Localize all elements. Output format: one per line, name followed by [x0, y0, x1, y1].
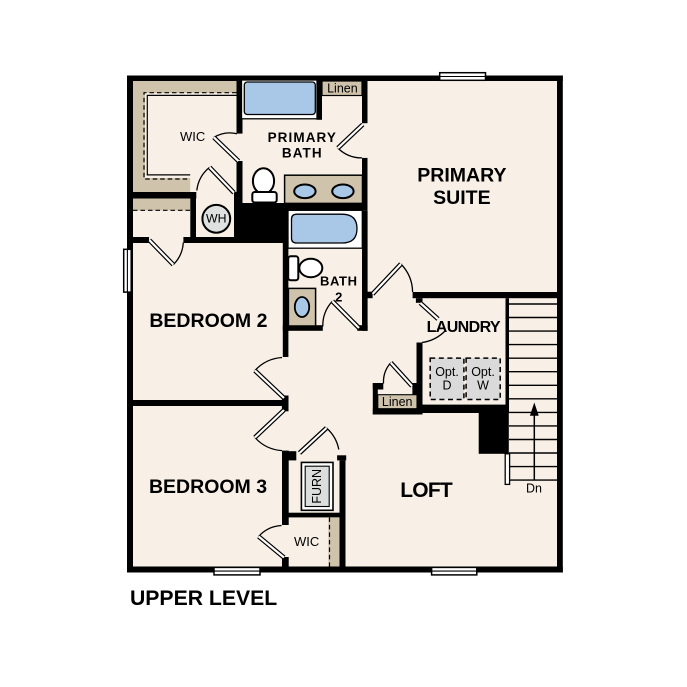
svg-text:BATH: BATH [320, 274, 358, 289]
svg-text:2: 2 [335, 290, 342, 305]
svg-text:BEDROOM 2: BEDROOM 2 [149, 310, 267, 332]
svg-text:FURN: FURN [310, 469, 324, 504]
svg-text:BATH: BATH [282, 146, 323, 161]
svg-text:Opt.: Opt. [471, 365, 495, 379]
svg-text:WIC: WIC [180, 129, 205, 144]
svg-text:W: W [477, 379, 489, 393]
svg-text:Linen: Linen [382, 395, 413, 409]
svg-text:PRIMARY: PRIMARY [268, 130, 337, 145]
svg-text:BEDROOM 3: BEDROOM 3 [149, 476, 267, 498]
svg-text:UPPER LEVEL: UPPER LEVEL [130, 587, 277, 610]
svg-text:Dn: Dn [526, 482, 542, 496]
svg-text:D: D [442, 379, 451, 393]
svg-text:PRIMARY: PRIMARY [417, 165, 506, 187]
svg-text:LAUNDRY: LAUNDRY [427, 319, 501, 336]
svg-text:Linen: Linen [327, 82, 358, 96]
svg-text:LOFT: LOFT [400, 479, 453, 502]
svg-text:WIC: WIC [294, 534, 319, 549]
svg-text:SUITE: SUITE [433, 187, 490, 209]
svg-text:WH: WH [206, 212, 227, 226]
svg-text:Opt.: Opt. [435, 365, 459, 379]
